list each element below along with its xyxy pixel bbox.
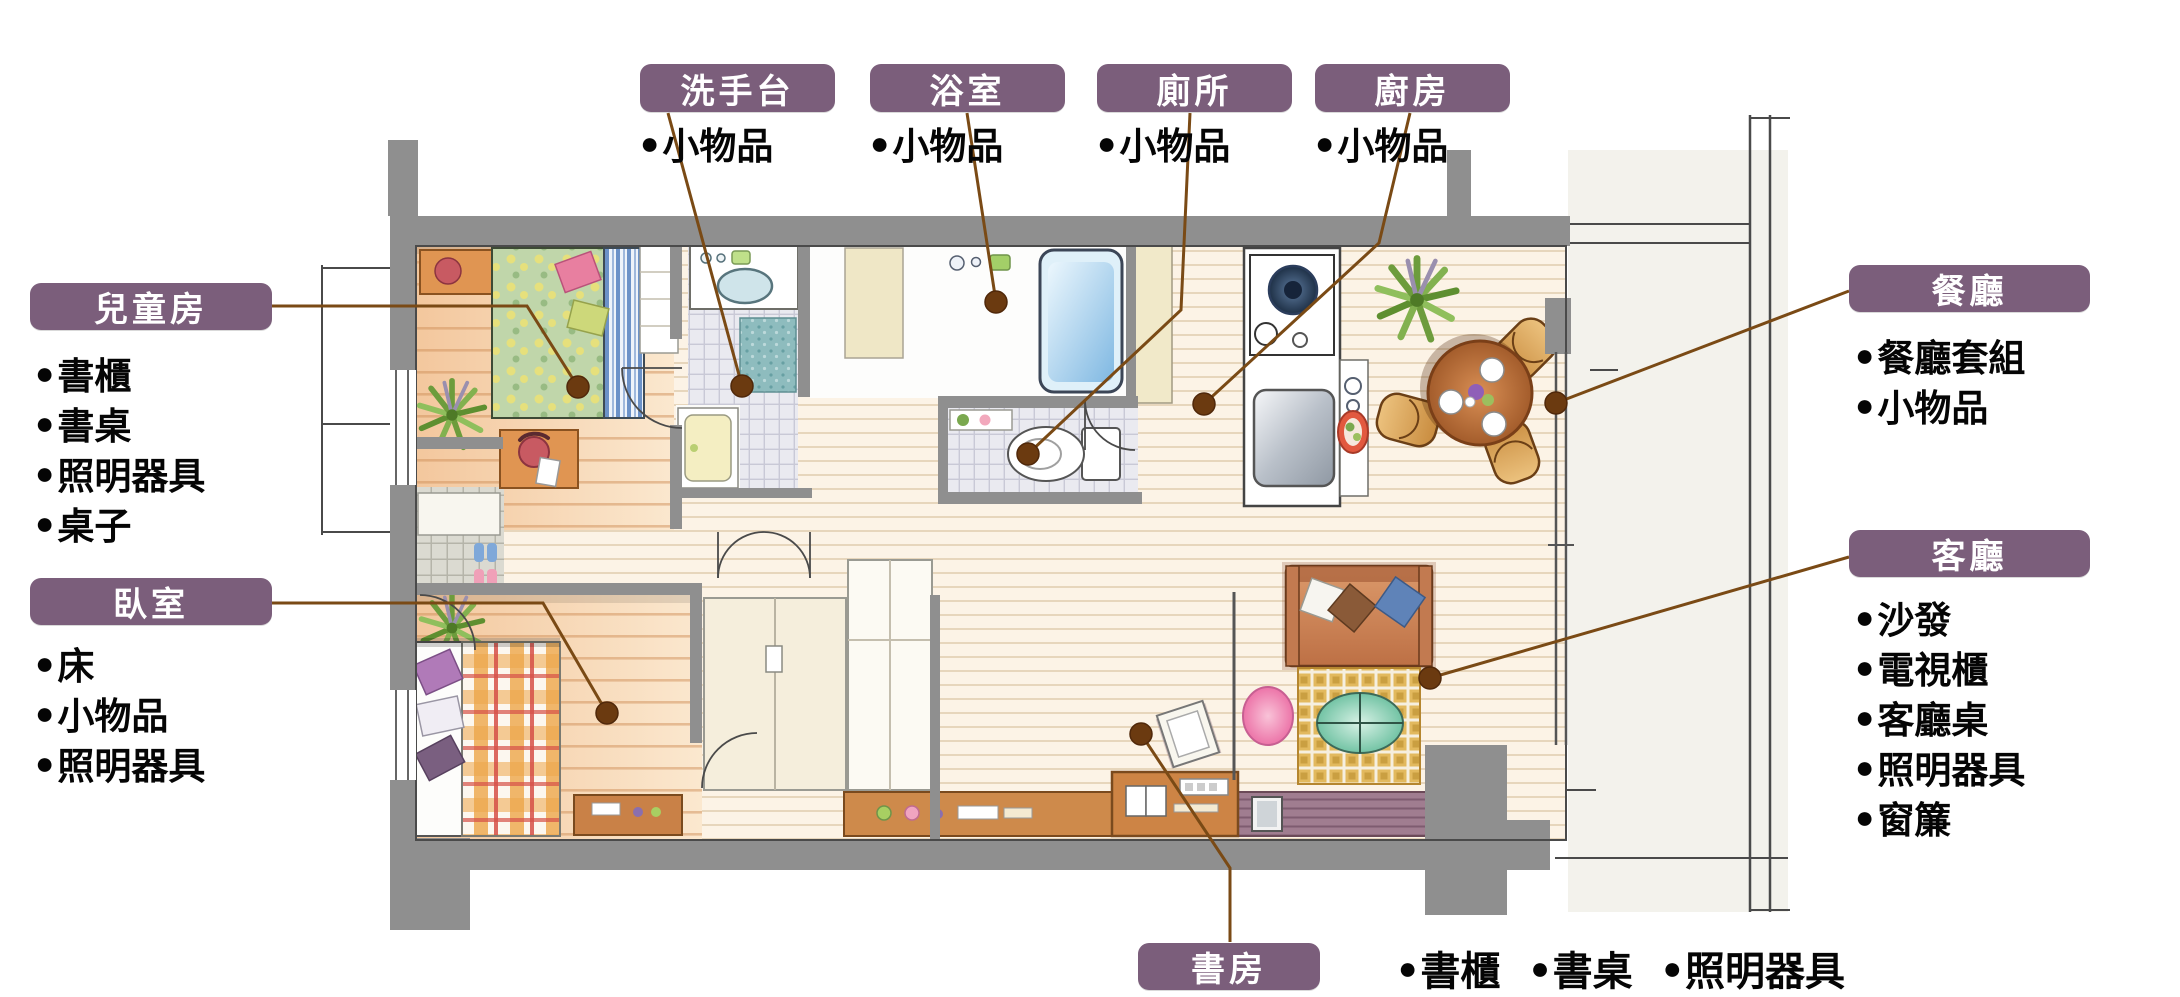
label-toilet-text: 廁所: [1157, 64, 1233, 113]
legend-item: ●客廳桌: [1855, 692, 2025, 742]
bullet-icon: ●: [35, 355, 54, 392]
legend-item: ●書櫃: [35, 348, 205, 398]
plate: [1482, 412, 1506, 436]
legend-bedroom: ●床 ●小物品 ●照明器具: [35, 638, 205, 788]
label-bedroom: 臥室: [30, 578, 272, 625]
label-bathroom-text: 浴室: [930, 64, 1006, 113]
legend-item: ●小物品: [1097, 118, 1230, 168]
legend-item: ●小物品: [870, 118, 1003, 168]
legend-kids-room: ●書櫃 ●書桌 ●照明器具 ●桌子: [35, 348, 205, 548]
bullet-icon: ●: [1398, 950, 1417, 987]
legend-toilet: ●小物品: [1097, 118, 1230, 168]
label-kitchen-text: 廚房: [1375, 64, 1451, 113]
label-dining-text: 餐廳: [1932, 264, 2008, 313]
legend-item: ●沙發: [1855, 592, 2025, 642]
bullet-icon: ●: [35, 455, 54, 492]
bath-cabinet: [845, 248, 903, 358]
bullet-icon: ●: [35, 645, 54, 682]
legend-item: ●電視櫃: [1855, 642, 2025, 692]
bullet-icon: ●: [640, 125, 659, 162]
label-kitchen: 廚房: [1315, 64, 1510, 112]
pillar: [388, 140, 418, 216]
legend-item: ●桌子: [35, 498, 205, 548]
legend-item: ●照明器具: [35, 448, 205, 498]
bullet-icon: ●: [1097, 125, 1116, 162]
label-living-text: 客廳: [1932, 529, 2008, 578]
kids-bed-mat: [604, 248, 644, 418]
label-study: 書房: [1138, 943, 1320, 990]
shoe-cabinet: [418, 493, 500, 535]
label-dining: 餐廳: [1849, 265, 2090, 312]
plate: [1480, 358, 1504, 382]
legend-study: ●書櫃 ●書桌 ●照明器具: [1398, 944, 1845, 992]
legend-kitchen: ●小物品: [1315, 118, 1448, 168]
open-book: [1126, 786, 1146, 816]
legend-item: ●書桌: [1530, 944, 1632, 992]
shower-stall: [678, 408, 738, 488]
floorplan-page: { "bullet": "●", "palette": { "label_bg"…: [0, 0, 2180, 994]
bullet-icon: ●: [35, 695, 54, 732]
legend-item: ●小物品: [640, 118, 773, 168]
label-kids-room: 兒童房: [30, 283, 272, 330]
legend-item: ●書櫃: [1398, 944, 1500, 992]
washbasin-sink: [718, 269, 772, 303]
legend-item: ●小物品: [1855, 380, 2025, 430]
label-washbasin: 洗手台: [640, 64, 835, 112]
bullet-icon: ●: [1530, 950, 1549, 987]
bullet-icon: ●: [1315, 125, 1334, 162]
legend-washbasin: ●小物品: [640, 118, 773, 168]
kitchen-sink: [1254, 390, 1334, 486]
legend-item: ●照明器具: [1663, 944, 1845, 992]
legend-item: ●小物品: [1315, 118, 1448, 168]
bullet-icon: ●: [35, 505, 54, 542]
label-washbasin-text: 洗手台: [681, 64, 795, 113]
legend-item: ●窗簾: [1855, 792, 2025, 842]
floor-cushion: [1243, 687, 1293, 745]
legend-item: ●照明器具: [1855, 742, 2025, 792]
bullet-icon: ●: [1663, 950, 1682, 987]
bullet-icon: ●: [1855, 337, 1874, 374]
bed-plaid-blanket: [462, 642, 560, 836]
balcony-floor: [1568, 150, 1788, 912]
floor-plan: [0, 0, 2180, 994]
legend-bathroom: ●小物品: [870, 118, 1003, 168]
pillar: [1447, 150, 1471, 216]
paper: [536, 457, 560, 486]
legend-dining: ●餐廳套組 ●小物品: [1855, 330, 2025, 430]
label-toilet: 廁所: [1097, 64, 1292, 112]
label-living: 客廳: [1849, 530, 2090, 577]
bullet-icon: ●: [35, 405, 54, 442]
vase: [435, 258, 461, 284]
bullet-icon: ●: [870, 125, 889, 162]
legend-living: ●沙發 ●電視櫃 ●客廳桌 ●照明器具 ●窗簾: [1855, 592, 2025, 842]
bath-water: [1048, 262, 1114, 382]
legend-item: ●床: [35, 638, 205, 688]
bedroom-dresser: [574, 795, 682, 835]
label-study-text: 書房: [1191, 942, 1267, 991]
label-kids-room-text: 兒童房: [94, 282, 208, 331]
bullet-icon: ●: [1855, 699, 1874, 736]
slippers-blue: [474, 543, 484, 562]
bullet-icon: ●: [1855, 599, 1874, 636]
bullet-icon: ●: [1855, 749, 1874, 786]
living-corner-wall: [1425, 745, 1507, 915]
bullet-icon: ●: [1855, 387, 1874, 424]
bullet-icon: ●: [1855, 649, 1874, 686]
plate: [1439, 390, 1463, 414]
label-bedroom-text: 臥室: [113, 577, 189, 626]
legend-item: ●書桌: [35, 398, 205, 448]
legend-item: ●小物品: [35, 688, 205, 738]
legend-item: ●餐廳套組: [1855, 330, 2025, 380]
label-bathroom: 浴室: [870, 64, 1065, 112]
bullet-icon: ●: [1855, 799, 1874, 836]
bullet-icon: ●: [35, 745, 54, 782]
legend-item: ●照明器具: [35, 738, 205, 788]
